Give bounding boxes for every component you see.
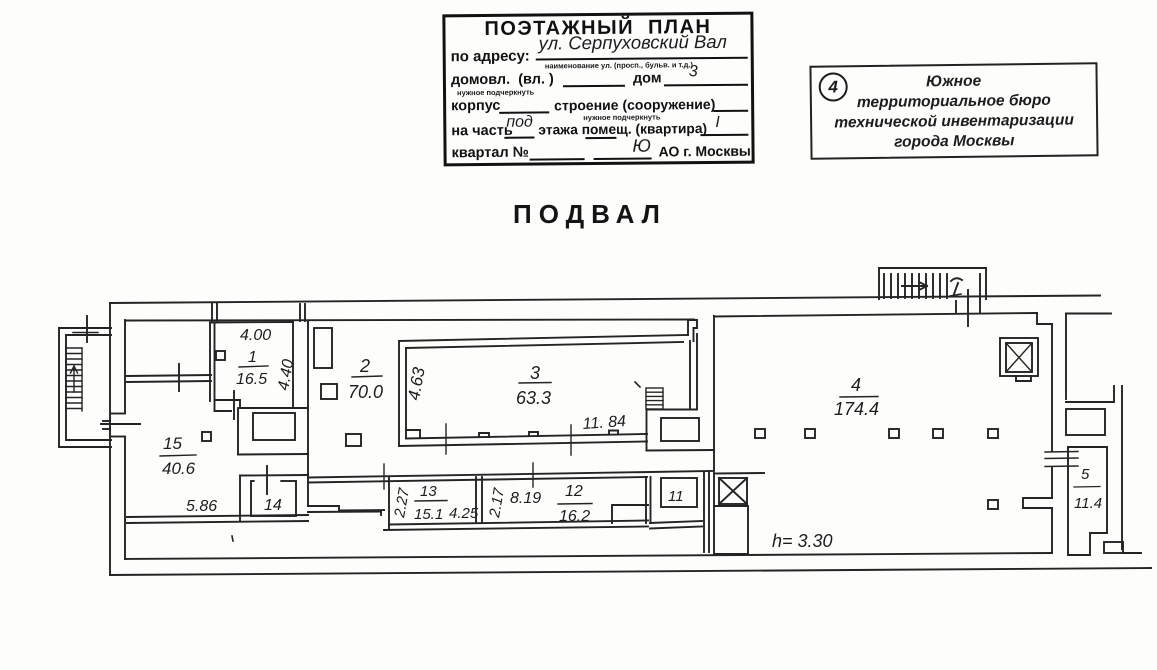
svg-text:4.63: 4.63: [404, 365, 429, 401]
svg-text:4.40: 4.40: [275, 358, 297, 392]
svg-text:63.3: 63.3: [516, 388, 551, 408]
svg-text:h= 3.30: h= 3.30: [772, 531, 833, 551]
svg-text:2.17: 2.17: [486, 486, 508, 519]
svg-text:14: 14: [264, 497, 282, 514]
svg-text:1: 1: [248, 349, 257, 366]
svg-text:3: 3: [530, 363, 540, 383]
svg-text:12: 12: [565, 483, 583, 500]
svg-text:174.4: 174.4: [834, 399, 879, 419]
svg-text:16.5: 16.5: [236, 371, 267, 388]
svg-text:5.86: 5.86: [186, 498, 217, 515]
svg-text:40.6: 40.6: [162, 459, 196, 478]
svg-text:2: 2: [359, 356, 370, 376]
svg-text:8.19: 8.19: [510, 490, 541, 507]
svg-text:4: 4: [851, 375, 861, 395]
svg-text:15: 15: [163, 434, 182, 453]
svg-text:13: 13: [420, 483, 437, 500]
svg-text:5: 5: [1081, 466, 1090, 483]
svg-text:4.00: 4.00: [240, 327, 271, 344]
svg-text:11: 11: [668, 488, 684, 505]
svg-text:70.0: 70.0: [348, 382, 383, 402]
svg-text:4.25: 4.25: [449, 505, 479, 522]
svg-text:15.1: 15.1: [414, 506, 443, 523]
svg-text:2.27: 2.27: [391, 486, 413, 519]
svg-text:11. 84: 11. 84: [582, 413, 626, 433]
svg-text:11.4: 11.4: [1074, 495, 1102, 512]
